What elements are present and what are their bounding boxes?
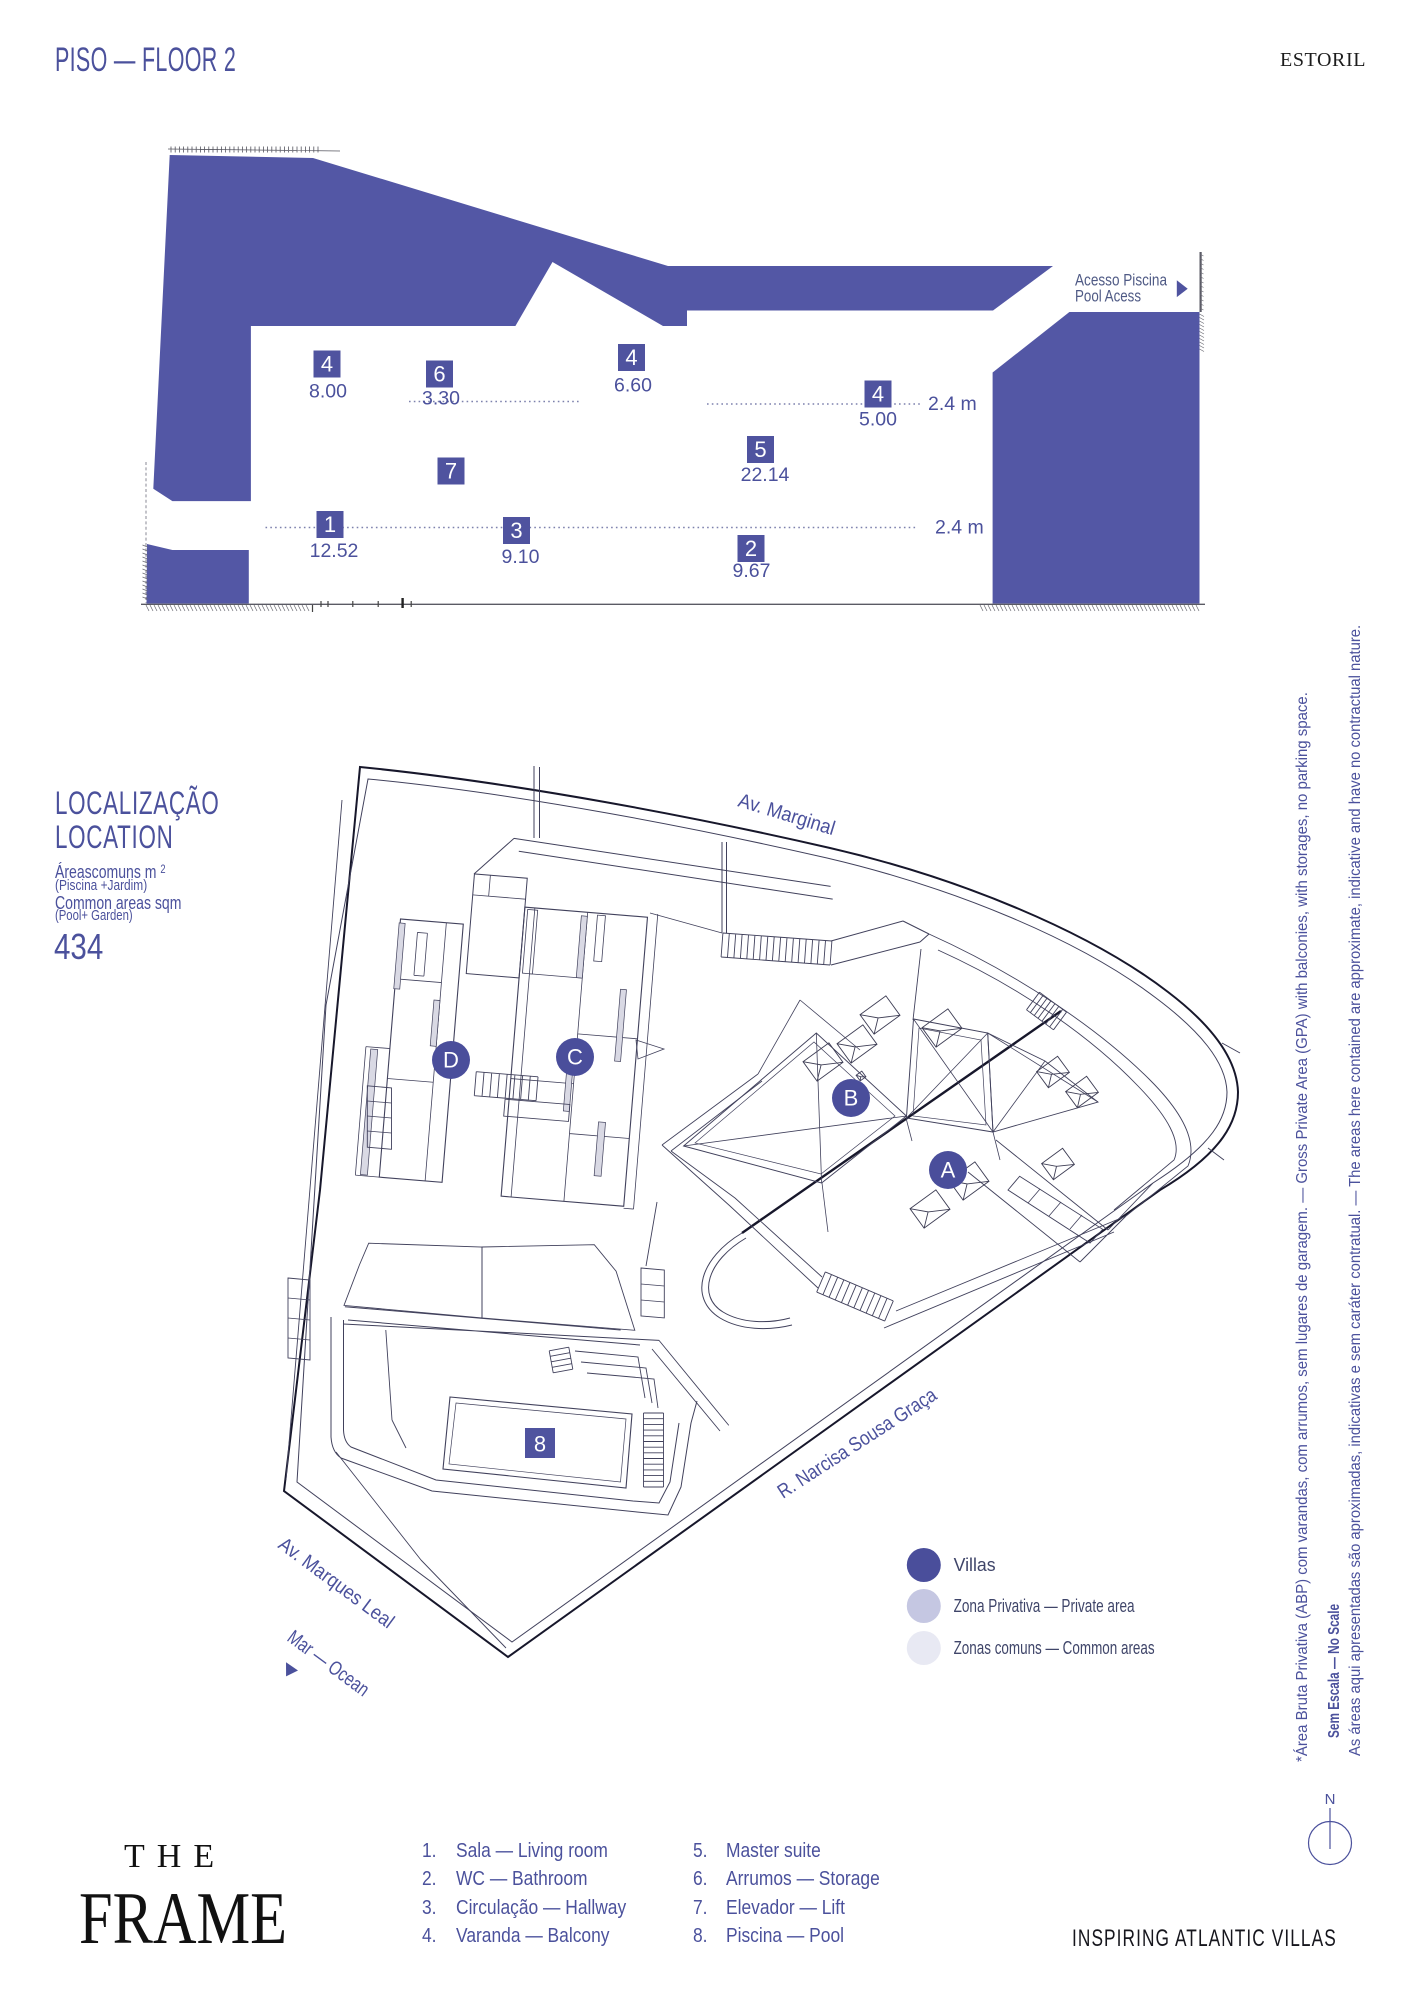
svg-text:6.60: 6.60	[614, 375, 652, 397]
svg-text:N: N	[1325, 1791, 1336, 1808]
svg-text:D: D	[443, 1048, 459, 1073]
svg-text:8.00: 8.00	[309, 381, 347, 403]
svg-text:Pool Acess: Pool Acess	[1075, 287, 1141, 306]
svg-text:4: 4	[321, 352, 333, 377]
svg-text:A: A	[941, 1158, 956, 1183]
svg-text:Zonas comuns — Common areas: Zonas comuns — Common areas	[954, 1638, 1155, 1658]
svg-text:1: 1	[324, 512, 336, 537]
svg-text:2.4 m: 2.4 m	[935, 517, 984, 539]
svg-text:9.67: 9.67	[733, 560, 771, 582]
svg-text:6: 6	[433, 362, 445, 387]
svg-text:8: 8	[534, 1432, 546, 1457]
svg-text:22.14: 22.14	[741, 464, 790, 486]
svg-text:Zona Privativa — Private area: Zona Privativa — Private area	[954, 1596, 1136, 1616]
svg-text:4: 4	[872, 382, 884, 407]
svg-text:7: 7	[445, 459, 457, 484]
svg-text:B: B	[844, 1086, 859, 1111]
svg-text:C: C	[567, 1045, 583, 1070]
svg-text:2.4 m: 2.4 m	[928, 393, 977, 415]
svg-text:4: 4	[625, 345, 637, 370]
svg-text:3: 3	[510, 518, 522, 543]
svg-text:Av. Marques Leal: Av. Marques Leal	[274, 1533, 398, 1633]
svg-text:12.52: 12.52	[310, 540, 359, 562]
svg-text:2: 2	[745, 536, 757, 561]
svg-text:9.10: 9.10	[502, 546, 540, 568]
svg-text:3.30: 3.30	[422, 388, 460, 410]
svg-text:R. Narcisa Sousa Graça: R. Narcisa Sousa Graça	[774, 1384, 942, 1504]
svg-text:Av. Marginal: Av. Marginal	[736, 790, 838, 840]
svg-text:5.00: 5.00	[859, 408, 897, 430]
svg-text:5: 5	[754, 437, 766, 462]
svg-text:Mar — Ocean: Mar — Ocean	[283, 1626, 373, 1701]
svg-text:Villas: Villas	[954, 1555, 996, 1575]
